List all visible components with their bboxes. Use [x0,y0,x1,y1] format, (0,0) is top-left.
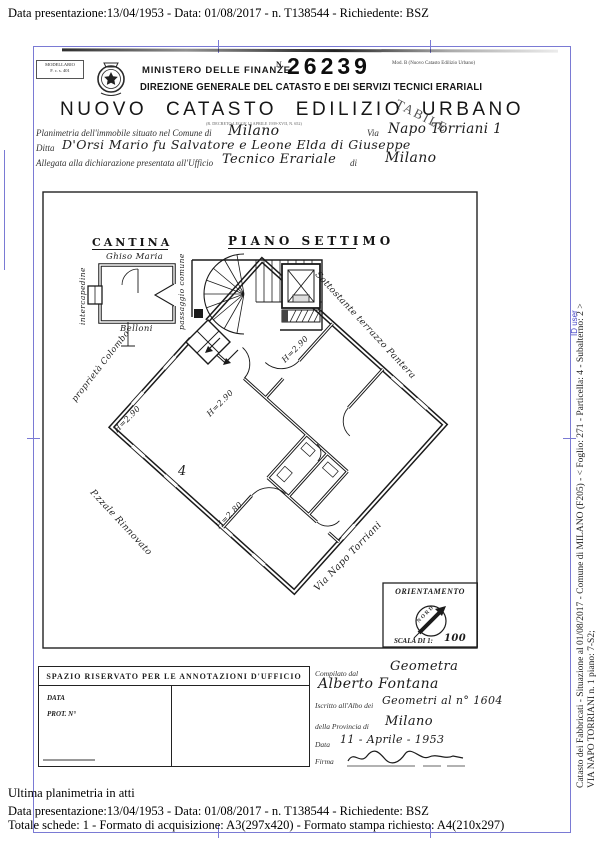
albo-value: Geometri al n° 1604 [382,694,503,707]
model-box-line2: F. c. s. 401 [37,68,83,74]
print-credit-smudge [43,759,95,761]
model-box-line1: MODELLARIO [37,61,83,68]
footer-line1: Ultima planimetria in atti [8,786,135,801]
cantina-right-note: passaggio comune [177,253,186,330]
side-text-line2: VIA NAPO TORRIANI n. 1 piano: 7-S2; [587,232,598,788]
cantina-title: CANTINA [92,236,168,250]
scale-label: SCALA DI 1: [394,637,433,645]
floor-title: PIANO SETTIMO [228,234,356,249]
side-watermark: ID user [570,310,579,336]
scale-value: 100 [444,633,466,644]
margin-line [4,150,5,270]
form-label-ditta: Ditta [36,143,55,153]
stamp-number: 26239 [287,53,371,80]
form-label-di: di [350,158,357,168]
office-data-label: DATA [47,694,65,702]
compiled-value-1: Geometra [390,659,458,674]
compiled-value-2: Alberto Fontana [318,676,439,692]
form-value-ufficio: Tecnico Erariale [222,152,336,167]
albo-label: Iscritto all'Albo dei [315,701,373,710]
viewer-top-line: Data presentazione:13/04/1953 - Data: 01… [8,6,429,21]
office-prot-label: PROT. N° [47,710,76,718]
office-box-divider [171,685,172,766]
border-tick [563,438,576,439]
state-emblem [95,60,127,98]
scanned-cadastral-document: Data presentazione:13/04/1953 - Data: 01… [0,0,600,841]
provincia-value: Milano [385,714,433,729]
ministry-line: MINISTERO DELLE FINANZE [142,65,291,76]
form-value-di: Milano [385,150,436,166]
model-box: MODELLARIO F. c. s. 401 [36,60,84,79]
border-tick [27,438,40,439]
form-value-via: Napo Torriani 1 [388,121,502,137]
model-reference: Mod. B (Nuovo Catasto Edilizio Urbano) [392,61,475,66]
provincia-label: della Provincia di [315,722,369,731]
signature-scribble [345,748,470,768]
office-box-rule [39,685,309,686]
side-text-block: Catasto dei Fabbricati - Situazione al 0… [576,232,598,788]
cantina-left-note: intercapedine [78,267,87,325]
stamp-number-prefix: N. [276,60,284,69]
document-title: NUOVO CATASTO EDILIZIO URBANO [60,99,524,121]
room-number: 4 [178,464,187,479]
compass-title: ORIENTAMENTO [385,587,475,596]
firma-label: Firma [315,757,334,766]
office-annotations-box: SPAZIO RISERVATO PER LE ANNOTAZIONI D'UF… [38,666,310,767]
direction-line: DIREZIONE GENERALE DEL CATASTO E DEI SER… [140,82,482,93]
date-label: Data [315,740,330,749]
form-value-ditta: D'Orsi Mario fu Salvatore e Leone Elda d… [62,137,411,152]
office-box-header: SPAZIO RISERVATO PER LE ANNOTAZIONI D'UF… [39,672,309,681]
footer-line3: Totale schede: 1 - Formato di acquisizio… [8,818,504,833]
date-value: 11 - Aprile - 1953 [340,733,444,746]
footer-line2: Data presentazione:13/04/1953 - Data: 01… [8,804,429,819]
form-label-ufficio: Allegata alla dichiarazione presentata a… [36,158,213,168]
cantina-owner: Ghiso Maria [106,252,163,262]
